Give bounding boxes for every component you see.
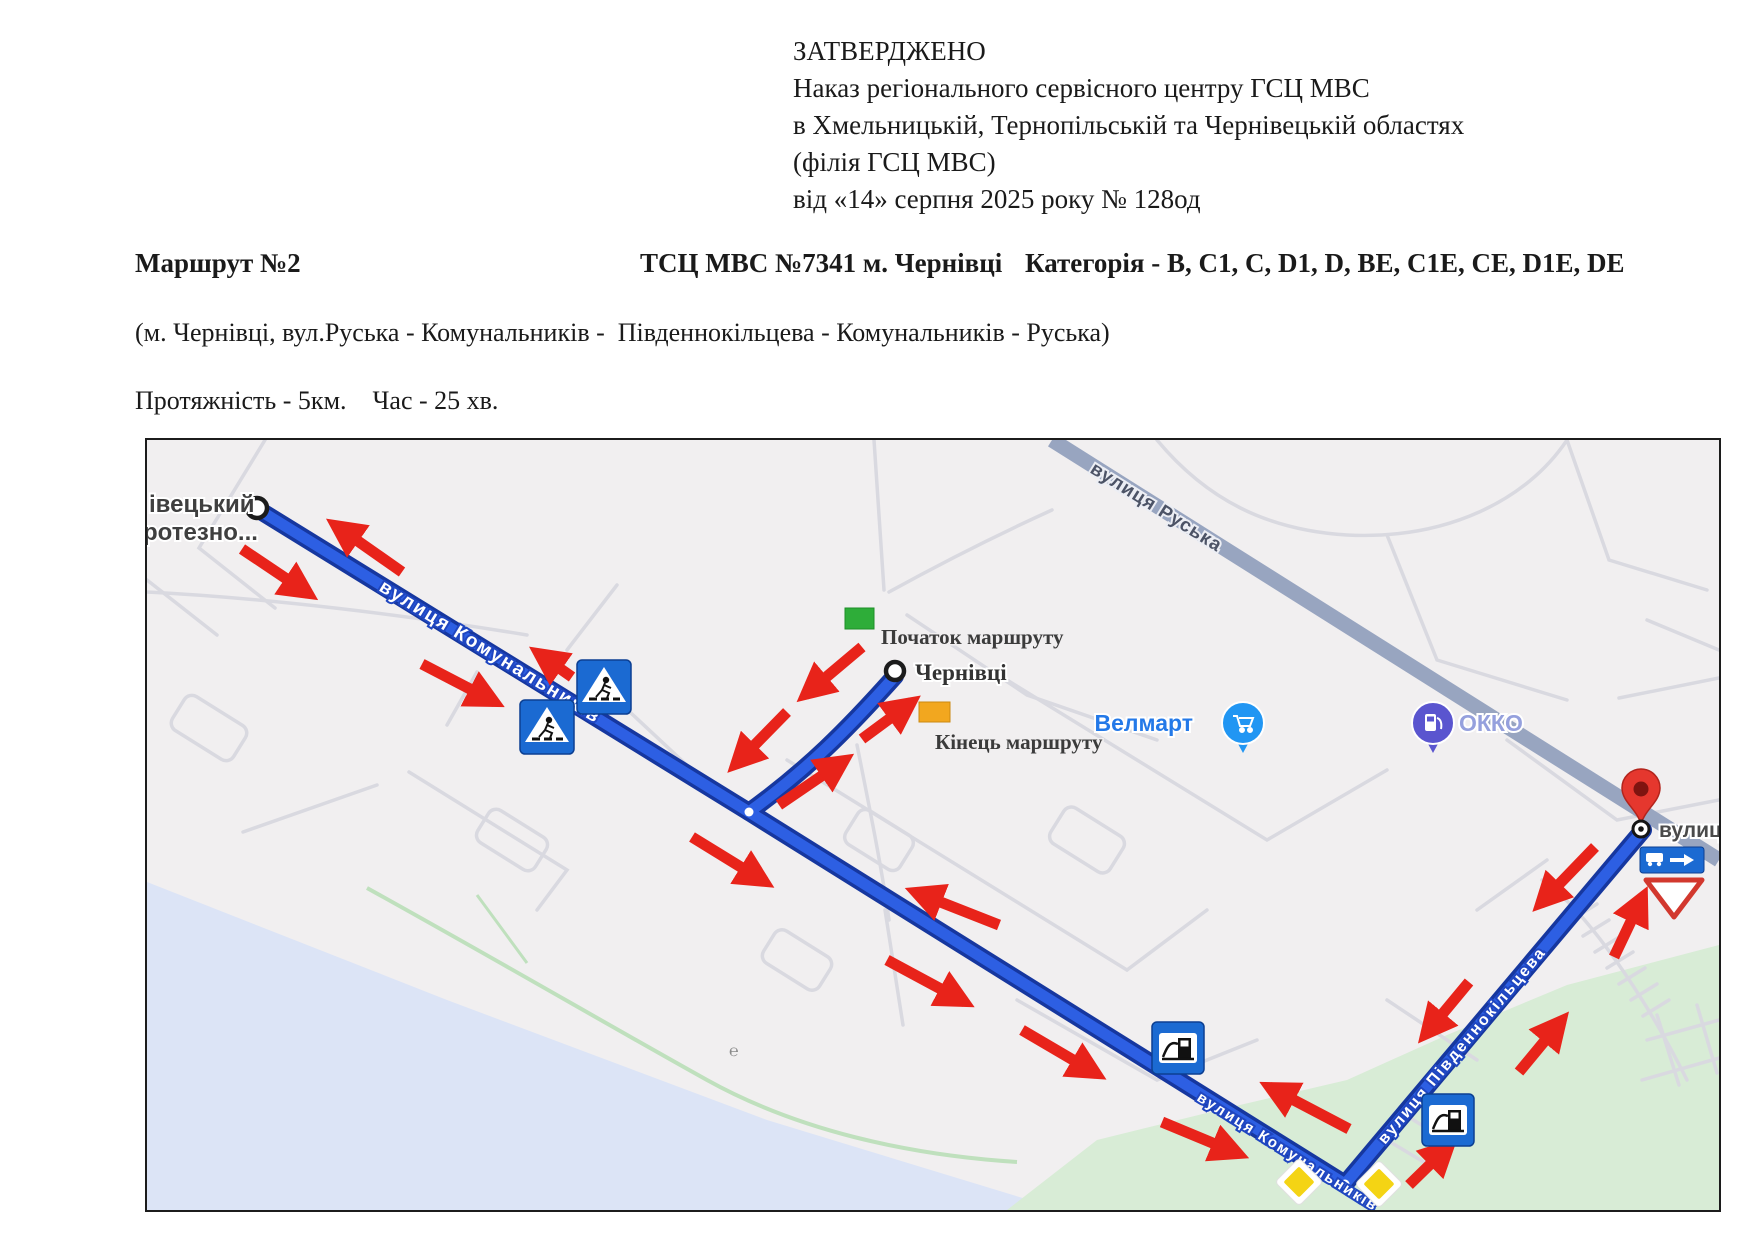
- approval-line: ЗАТВЕРДЖЕНО: [793, 33, 1464, 70]
- route-start-square: [845, 608, 874, 629]
- route-map-canvas: вулиця Руська вулиця Комунальників вулиц…: [147, 440, 1719, 1210]
- destination-marker-dot: [1638, 826, 1644, 832]
- category-list: Категорія - B, C1, C, D1, D, BE, C1E, CE…: [1025, 248, 1625, 279]
- approval-line: від «14» серпня 2025 року № 128од: [793, 181, 1464, 218]
- service-center-title: ТСЦ МВС №7341 м. Чернівці: [640, 248, 1002, 279]
- route-header-row: Маршрут №2 ТСЦ МВС №7341 м. Чернівці Кат…: [0, 248, 1755, 282]
- route-number: Маршрут №2: [135, 248, 301, 279]
- street-label-clipped: вулиц: [1659, 819, 1719, 842]
- fuel-station-sign-icon: [1152, 1022, 1204, 1074]
- pedestrian-crossing-sign-icon: [577, 660, 631, 714]
- turnaround-label-line1: івецький: [149, 491, 254, 518]
- approval-line: в Хмельницькій, Тернопільській та Чернів…: [793, 107, 1464, 144]
- pedestrian-crossing-sign-icon: [520, 700, 574, 754]
- street-label-ruska: вулиця Руська: [1086, 458, 1226, 556]
- turnaround-label-line2: ротезно...: [147, 519, 258, 546]
- route-start-label: Початок маршруту: [881, 625, 1064, 649]
- okko-poi: ОККО: [1412, 702, 1523, 753]
- route-stats: Протяжність - 5км. Час - 25 хв.: [135, 386, 498, 416]
- approval-block: ЗАТВЕРДЖЕНО Наказ регіонального сервісно…: [793, 33, 1464, 218]
- approval-line: (філія ГСЦ МВС): [793, 144, 1464, 181]
- route-map: вулиця Руська вулиця Комунальників вулиц…: [145, 438, 1721, 1212]
- okko-label: ОККО: [1459, 710, 1523, 736]
- fuel-station-sign-icon: [1422, 1094, 1474, 1146]
- velmart-poi: Велмарт: [1094, 702, 1264, 753]
- city-marker-label: Чернівці: [915, 660, 1007, 685]
- approval-line: Наказ регіонального сервісного центру ГС…: [793, 70, 1464, 107]
- map-misc-glyph: ℮: [729, 1043, 739, 1060]
- route-end-label: Кінець маршруту: [935, 730, 1103, 754]
- blue-info-sign-icon: [1640, 847, 1704, 873]
- yield-sign-icon: [1646, 880, 1702, 917]
- velmart-label: Велмарт: [1094, 710, 1193, 736]
- city-marker: [886, 662, 904, 680]
- route-end-square: [919, 702, 950, 722]
- route-description: (м. Чернівці, вул.Руська - Комунальників…: [135, 318, 1110, 348]
